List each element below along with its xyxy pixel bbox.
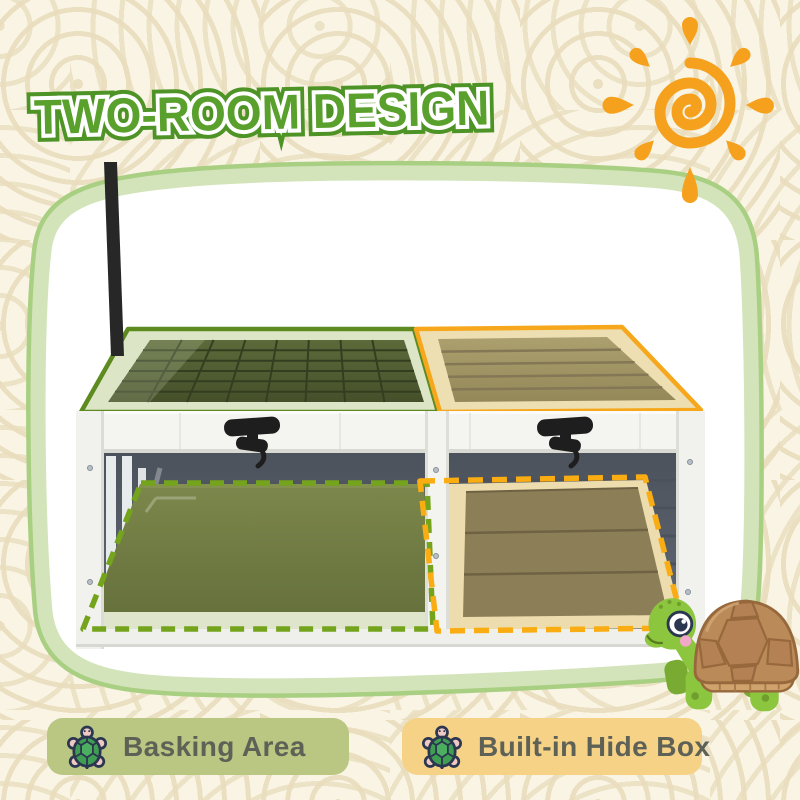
page-title: TWO-ROOM DESIGN TWO-ROOM DESIGN TWO-ROOM…	[33, 67, 467, 160]
basking-area-label: Basking Area	[123, 731, 306, 763]
hide-box-chip: Built-in Hide Box	[402, 718, 702, 775]
turtle-icon	[422, 725, 462, 769]
mesh-lid	[81, 329, 438, 412]
hide-box-label: Built-in Hide Box	[478, 731, 710, 763]
marketing-graphic: TWO-ROOM DESIGN TWO-ROOM DESIGN TWO-ROOM…	[0, 0, 800, 800]
basking-room-interior	[86, 452, 432, 632]
turtle-icon	[67, 725, 107, 769]
page-title-text: TWO-ROOM DESIGN	[33, 67, 467, 160]
basking-area-chip: Basking Area	[47, 718, 349, 775]
